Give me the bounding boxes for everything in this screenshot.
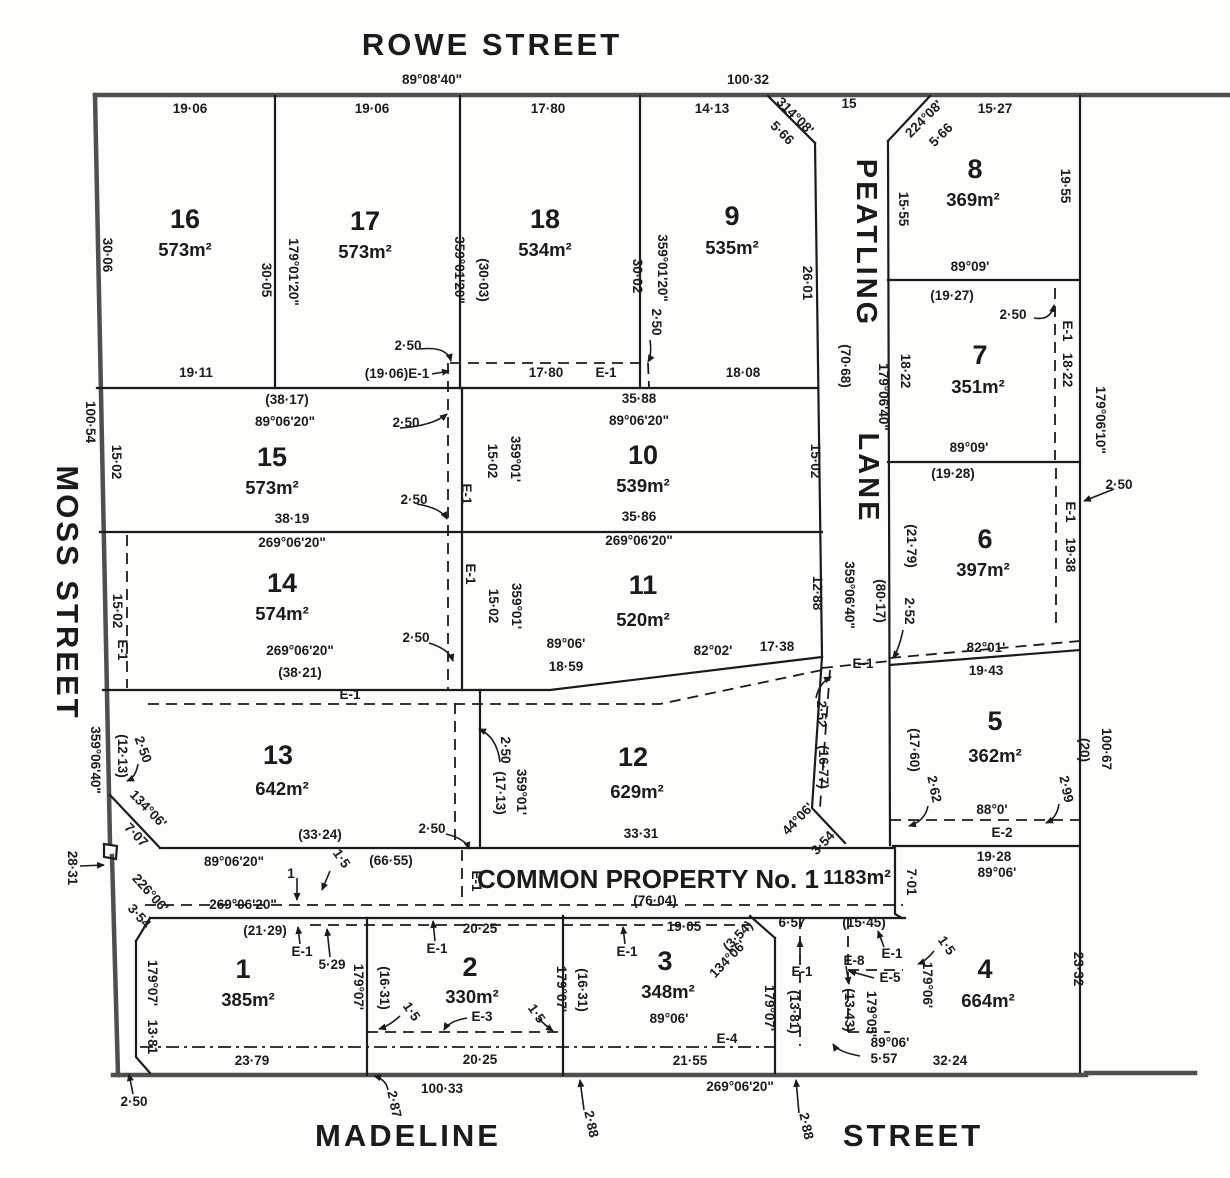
dimension-label: (15·45): [842, 915, 886, 930]
leader-arrow: [580, 1080, 584, 1110]
lot-number: 1: [235, 954, 250, 984]
dimension-label: (12·13): [115, 734, 130, 778]
lot-number: 14: [267, 568, 297, 598]
dimension-label: 5·57: [870, 1051, 897, 1066]
leader-arrow: [1034, 305, 1054, 318]
dimension-label: 19·06: [173, 101, 208, 116]
dimension-label: 100·67: [1099, 728, 1114, 770]
lot-area: 362m²: [968, 745, 1021, 766]
lot-area: 535m²: [705, 237, 758, 258]
dimension-label: 23·79: [235, 1053, 270, 1068]
lot-number: 18: [530, 204, 560, 234]
lot-number: 16: [170, 204, 200, 234]
dimension-label: 18·22: [898, 354, 913, 389]
dimension-label: E-1: [115, 639, 130, 661]
leader-arrow: [322, 871, 330, 890]
dimension-label: 89°08'40": [402, 72, 462, 87]
survey-plan-page: 89°08'40"100·3219·0619·0617·8014·131515·…: [0, 0, 1230, 1178]
leader-arrow: [432, 371, 449, 374]
dimension-label: 359°01'20": [655, 234, 670, 302]
lot-number: 3: [657, 946, 672, 976]
lot-area: 573m²: [158, 239, 211, 260]
street-name: STREET: [843, 1118, 983, 1153]
dimension-label: 89°06': [650, 1011, 689, 1026]
leader-arrow: [893, 630, 903, 658]
easement-line: [648, 363, 649, 387]
lot-area: 574m²: [255, 603, 308, 624]
dimension-label: 2·50: [120, 1094, 147, 1109]
lot-area: 369m²: [946, 189, 999, 210]
dimension-label: 32·24: [933, 1053, 968, 1068]
survey-plan-drawing: 89°08'40"100·3219·0619·0617·8014·131515·…: [0, 0, 1230, 1178]
dimension-label: 5·29: [318, 957, 345, 972]
leader-arrow: [327, 929, 330, 957]
dimension-labels: 89°08'40"100·3219·0619·0617·8014·131515·…: [65, 72, 1133, 1141]
dimension-label: (19·27): [930, 288, 974, 303]
dimension-label: (16·31): [575, 968, 590, 1012]
dimension-label: 30·06: [100, 238, 115, 273]
dimension-label: 2·88: [581, 1109, 601, 1139]
lot-number: 2: [462, 952, 477, 982]
dimension-label: 33·31: [624, 826, 659, 841]
dimension-label: 2·50: [498, 736, 513, 763]
dimension-label: 179°06': [920, 962, 935, 1008]
dimension-label: 359°01': [508, 436, 523, 482]
dimension-label: (13·81): [787, 990, 802, 1034]
dimension-label: E-1: [595, 365, 617, 380]
dimension-label: 17·38: [760, 639, 795, 654]
dimension-label: 19·06: [355, 101, 390, 116]
lot-area: 351m²: [951, 376, 1004, 397]
dimension-label: 82°01': [967, 640, 1006, 655]
dimension-label: 20·25: [463, 921, 498, 936]
dimension-label: 2·52: [902, 597, 917, 624]
lot-area: 520m²: [616, 609, 669, 630]
boundary-line: [888, 141, 890, 845]
dimension-label: 15: [841, 96, 857, 111]
street-name: MADELINE: [315, 1118, 501, 1153]
leader-arrow: [623, 927, 625, 944]
dimension-label: (76·04): [633, 893, 677, 908]
dimension-label: 14·13: [695, 101, 730, 116]
dimension-label: 359°06'40": [842, 561, 857, 629]
dimension-label: 2·50: [418, 821, 445, 836]
dimension-label: E-1: [339, 687, 361, 702]
dimension-label: 15·02: [486, 589, 501, 624]
leader-arrow: [298, 927, 300, 944]
dimension-label: (38·17): [265, 392, 309, 407]
dimension-label: 1·5: [400, 999, 424, 1024]
dimension-label: 89°09': [950, 440, 989, 455]
dimension-label: 100·54: [83, 401, 98, 444]
dimension-label: 89°06'20": [255, 414, 315, 429]
street-name: MOSS STREET: [50, 465, 85, 720]
dimension-label: 15·02: [110, 594, 125, 629]
boundary-line: [895, 846, 902, 918]
dimension-label: 20·25: [463, 1052, 498, 1067]
dimension-label: 88°0': [976, 802, 1007, 817]
dimension-label: 15·02: [808, 444, 823, 479]
dimension-label: 89°06'20": [609, 413, 669, 428]
lot-number: 7: [972, 340, 987, 370]
dimension-label: 359°01': [514, 769, 529, 815]
dimension-label: 35·88: [622, 391, 657, 406]
dimension-label: 359°06'40": [88, 726, 103, 794]
dimension-label: (17·13): [493, 771, 508, 815]
dimension-label: 19·43: [969, 663, 1004, 678]
dimension-label: 35·86: [622, 509, 657, 524]
dimension-label: 30·02: [630, 259, 645, 294]
dimension-label: 7·01: [904, 868, 919, 896]
dimension-label: E-1: [616, 944, 638, 959]
dimension-label: 179°07': [351, 964, 366, 1010]
dimension-label: E-1: [791, 964, 813, 979]
dimension-label: 179°07': [554, 966, 569, 1012]
common-property-label: COMMON PROPERTY No. 1: [477, 864, 819, 894]
dimension-label: (19·28): [931, 466, 975, 481]
dimension-label: 15·02: [109, 445, 124, 480]
lot-area: 534m²: [518, 239, 571, 260]
dimension-label: 269°06'20": [605, 533, 673, 548]
dimension-label: (30·03): [476, 258, 491, 302]
dimension-label: 2·50: [132, 734, 155, 765]
dimension-label: 2·50: [394, 338, 421, 353]
dimension-label: E-1: [291, 944, 313, 959]
easement-line: [148, 670, 822, 704]
dimension-label: 2·50: [999, 307, 1026, 322]
dimension-label: 89°06': [871, 1035, 910, 1050]
dimension-label: 269°06'20": [209, 897, 277, 912]
street-name: PEATLING: [850, 159, 882, 327]
dimension-label: 28·31: [65, 851, 80, 886]
dimension-label: 1·5: [525, 1001, 549, 1026]
dimension-label: 18·22: [1060, 353, 1075, 388]
dimension-label: (21·29): [243, 923, 287, 938]
dimension-label: 359°01': [509, 583, 524, 629]
lot-area: 330m²: [445, 986, 498, 1007]
dimension-label: 2·50: [400, 492, 427, 507]
leader-arrow: [374, 1076, 388, 1090]
lot-number: 5: [987, 706, 1002, 736]
dimension-label: 19·38: [1063, 538, 1078, 573]
dimension-label: 30·05: [259, 263, 274, 298]
dimension-label: (33·24): [298, 827, 342, 842]
dimension-label: 19·05: [667, 919, 702, 934]
dimension-label: E-1: [881, 946, 903, 961]
street-name: ROWE STREET: [362, 27, 622, 62]
lot-number: 9: [724, 201, 739, 231]
dimension-label: E-1: [463, 563, 478, 585]
dimension-label: 179°01'20": [286, 238, 301, 306]
dimension-label: 26·01: [800, 266, 815, 301]
dimension-label: 19·55: [1058, 169, 1073, 204]
dimension-label: E-1: [852, 656, 874, 671]
dimension-label: 269°06'20": [706, 1079, 774, 1094]
lot-area: 385m²: [221, 989, 274, 1010]
dimension-label: 19·11: [179, 365, 213, 380]
dimension-label: 5·66: [926, 120, 956, 150]
dimension-label: (66·55): [369, 853, 413, 868]
lot-number: 4: [977, 954, 992, 984]
dimension-label: E-2: [991, 825, 1012, 840]
dimension-label: E-4: [716, 1031, 738, 1046]
dimension-label: (16·77): [816, 745, 831, 789]
dimension-label: (19·06)E-1: [365, 366, 430, 381]
dimension-label: 6·57: [778, 915, 805, 930]
dimension-label: 12·88: [810, 576, 825, 611]
lot-number: 6: [977, 524, 992, 554]
dimension-label: 100·32: [727, 72, 769, 87]
leader-arrow: [878, 931, 884, 947]
lot-area: 573m²: [338, 241, 391, 262]
common-property-area: 1183m²: [823, 867, 891, 889]
dimension-label: E-8: [843, 953, 865, 968]
dimension-label: 15·27: [978, 101, 1013, 116]
dimension-label: 23·32: [1071, 952, 1086, 987]
leader-arrow: [909, 806, 928, 826]
leader-arrow: [446, 834, 469, 849]
dimension-label: 44°06': [779, 800, 817, 838]
dimension-label: 2·50: [1105, 477, 1132, 492]
dimension-label: 18·08: [726, 365, 761, 380]
dimension-label: (21·79): [904, 524, 919, 568]
dimension-label: 269°06'20": [266, 643, 334, 658]
dimension-label: 17·80: [529, 365, 564, 380]
dimension-label: 179°07': [762, 985, 777, 1031]
dimension-label: 7·07: [121, 820, 151, 850]
dimension-label: 179°06'40": [876, 363, 891, 431]
dimension-label: E-3: [471, 1009, 493, 1024]
lot-number: 11: [629, 570, 658, 600]
dimension-label: 89°06': [547, 636, 586, 651]
dimension-label: 82°02': [694, 643, 733, 658]
dimension-label: 359°01'20": [452, 236, 467, 304]
dimension-label: E-1: [1063, 501, 1078, 523]
dimension-label: (70·68): [838, 344, 853, 388]
dimension-label: 13·81: [145, 1020, 160, 1055]
lot-number: 10: [628, 440, 658, 470]
leader-arrow: [833, 1044, 860, 1056]
lot-area: 348m²: [641, 981, 694, 1002]
dimension-label: (16·31): [377, 966, 392, 1010]
dimension-label: 38·19: [275, 511, 310, 526]
dimension-label: (17·60): [907, 728, 922, 772]
dimension-label: 89°06': [978, 865, 1017, 880]
lot-area: 539m²: [616, 475, 669, 496]
leader-arrow: [379, 1016, 400, 1029]
street-name: LANE: [852, 433, 884, 524]
leader-arrow: [849, 971, 874, 978]
lot-number: 17: [350, 206, 380, 236]
dimension-label: 2·50: [402, 630, 429, 645]
dimension-label: 2·87: [384, 1089, 404, 1119]
dimension-label: E-1: [459, 483, 474, 505]
dimension-label: 1·5: [330, 846, 354, 871]
dimension-label: 18·59: [549, 659, 584, 674]
dimension-label: 89°09': [951, 259, 990, 274]
dimension-label: 1·5: [935, 933, 959, 958]
dimension-label: 15·02: [485, 444, 500, 479]
dimension-label: 179°05': [864, 991, 879, 1037]
dimension-label: 2·50: [649, 308, 664, 335]
lot-number: 15: [257, 442, 287, 472]
dimension-label: 21·55: [673, 1053, 708, 1068]
lot-number: 13: [263, 740, 293, 770]
dimension-label: 2·62: [924, 774, 944, 804]
leader-arrow: [796, 1080, 799, 1113]
dimension-label: 89°06'20": [204, 854, 264, 869]
dimension-label: 2·52: [814, 700, 829, 727]
lot-area: 664m²: [961, 990, 1014, 1011]
lot-area: 642m²: [255, 778, 308, 799]
dimension-label: E-1: [426, 941, 448, 956]
dimension-label: 179°07': [145, 960, 160, 1006]
dimension-label: (13·43): [842, 988, 857, 1032]
dimension-label: 17·80: [531, 101, 566, 116]
dimension-label: (20): [1077, 738, 1092, 762]
lot-number: 8: [967, 154, 982, 184]
lot-area: 573m²: [245, 477, 298, 498]
dimension-label: (80·17): [873, 579, 888, 623]
street-boundary-line: [112, 856, 118, 1075]
dimension-label: 1: [287, 866, 295, 881]
leader-arrow: [648, 340, 651, 362]
dimension-label: 2·50: [392, 415, 419, 430]
dimension-label: 269°06'20": [258, 535, 326, 550]
dimension-label: 2·88: [796, 1111, 816, 1141]
dimension-label: 19·28: [977, 849, 1012, 864]
leader-arrow: [429, 643, 453, 661]
dimension-label: 15·55: [896, 192, 911, 227]
leader-arrow: [80, 865, 104, 866]
dimension-label: E-1: [1060, 320, 1075, 342]
leader-arrow: [420, 349, 451, 362]
dimension-label: 179°06'10": [1093, 386, 1108, 454]
lot-area: 397m²: [956, 559, 1009, 580]
dimension-label: 100·33: [421, 1081, 464, 1096]
dimension-label: 2·99: [1056, 774, 1076, 804]
lot-number: 12: [618, 742, 648, 772]
dimension-label: (38·21): [278, 665, 322, 680]
lot-area: 629m²: [610, 781, 663, 802]
leader-arrow: [444, 1018, 467, 1030]
dimension-label: E-5: [879, 970, 901, 985]
leader-arrow: [479, 729, 500, 762]
leader-arrow: [433, 921, 435, 941]
